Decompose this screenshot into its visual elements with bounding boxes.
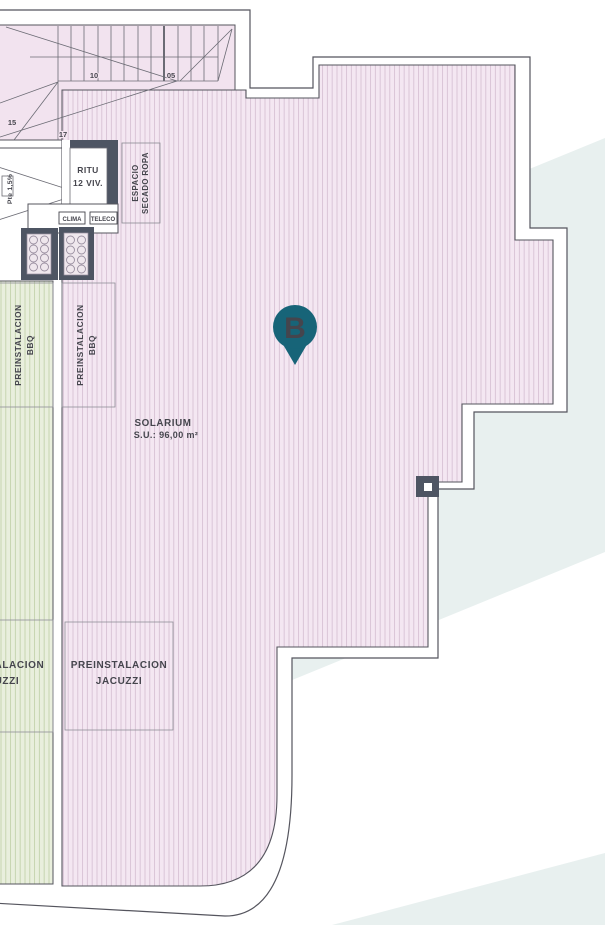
unit-letter: B [284,312,306,345]
ritu-wall-right [107,148,118,205]
teleco-label: TELECO [91,217,116,223]
bbq-pink-label-line2: BBQ [87,335,97,355]
stair-count-label: 10 [90,71,98,80]
jacuzzi-pink-label-line1: PREINSTALACION [71,660,168,671]
laundry-label-line2: SECADO ROPA [141,152,150,214]
stair-count-label: 05 [167,71,175,80]
laundry-label-line1: ESPACIO [131,164,140,201]
ramp-slope-label: Pte 1,5% [7,174,14,204]
ritu-label-line2: 12 VIV. [73,178,103,188]
clima-label: CLIMA [63,217,83,223]
floor-plan-page: 10 05 15 17 Pte 1,5% RITU 12 VIV. CLIMA … [0,0,605,925]
solarium-area-label: S.U.: 96,00 m² [134,430,199,440]
bbq-pink-label-line1: PREINSTALACION [75,304,85,386]
jacuzzi-pink-label-line2: JACUZZI [96,676,142,687]
solarium-title: SOLARIUM [134,418,191,429]
floor-plan-svg: 10 05 15 17 Pte 1,5% RITU 12 VIV. CLIMA … [0,0,605,925]
stair-count-label: 17 [59,130,67,139]
ritu-room [70,148,107,205]
green-terrace-strip [0,281,53,884]
ritu-label-line1: RITU [77,165,98,175]
column [416,476,439,497]
jacuzzi-green-label-line2: JACUZZI [0,676,19,687]
bbq-green-label-line2: BBQ [25,335,35,355]
bbq-green-label-line1: PREINSTALACION [13,304,23,386]
equipment-unit-2 [59,227,94,280]
jacuzzi-green-label-line1: PREINSTALACION [0,660,44,671]
stair-count-label: 15 [8,118,16,127]
equipment-unit-1 [21,228,58,280]
